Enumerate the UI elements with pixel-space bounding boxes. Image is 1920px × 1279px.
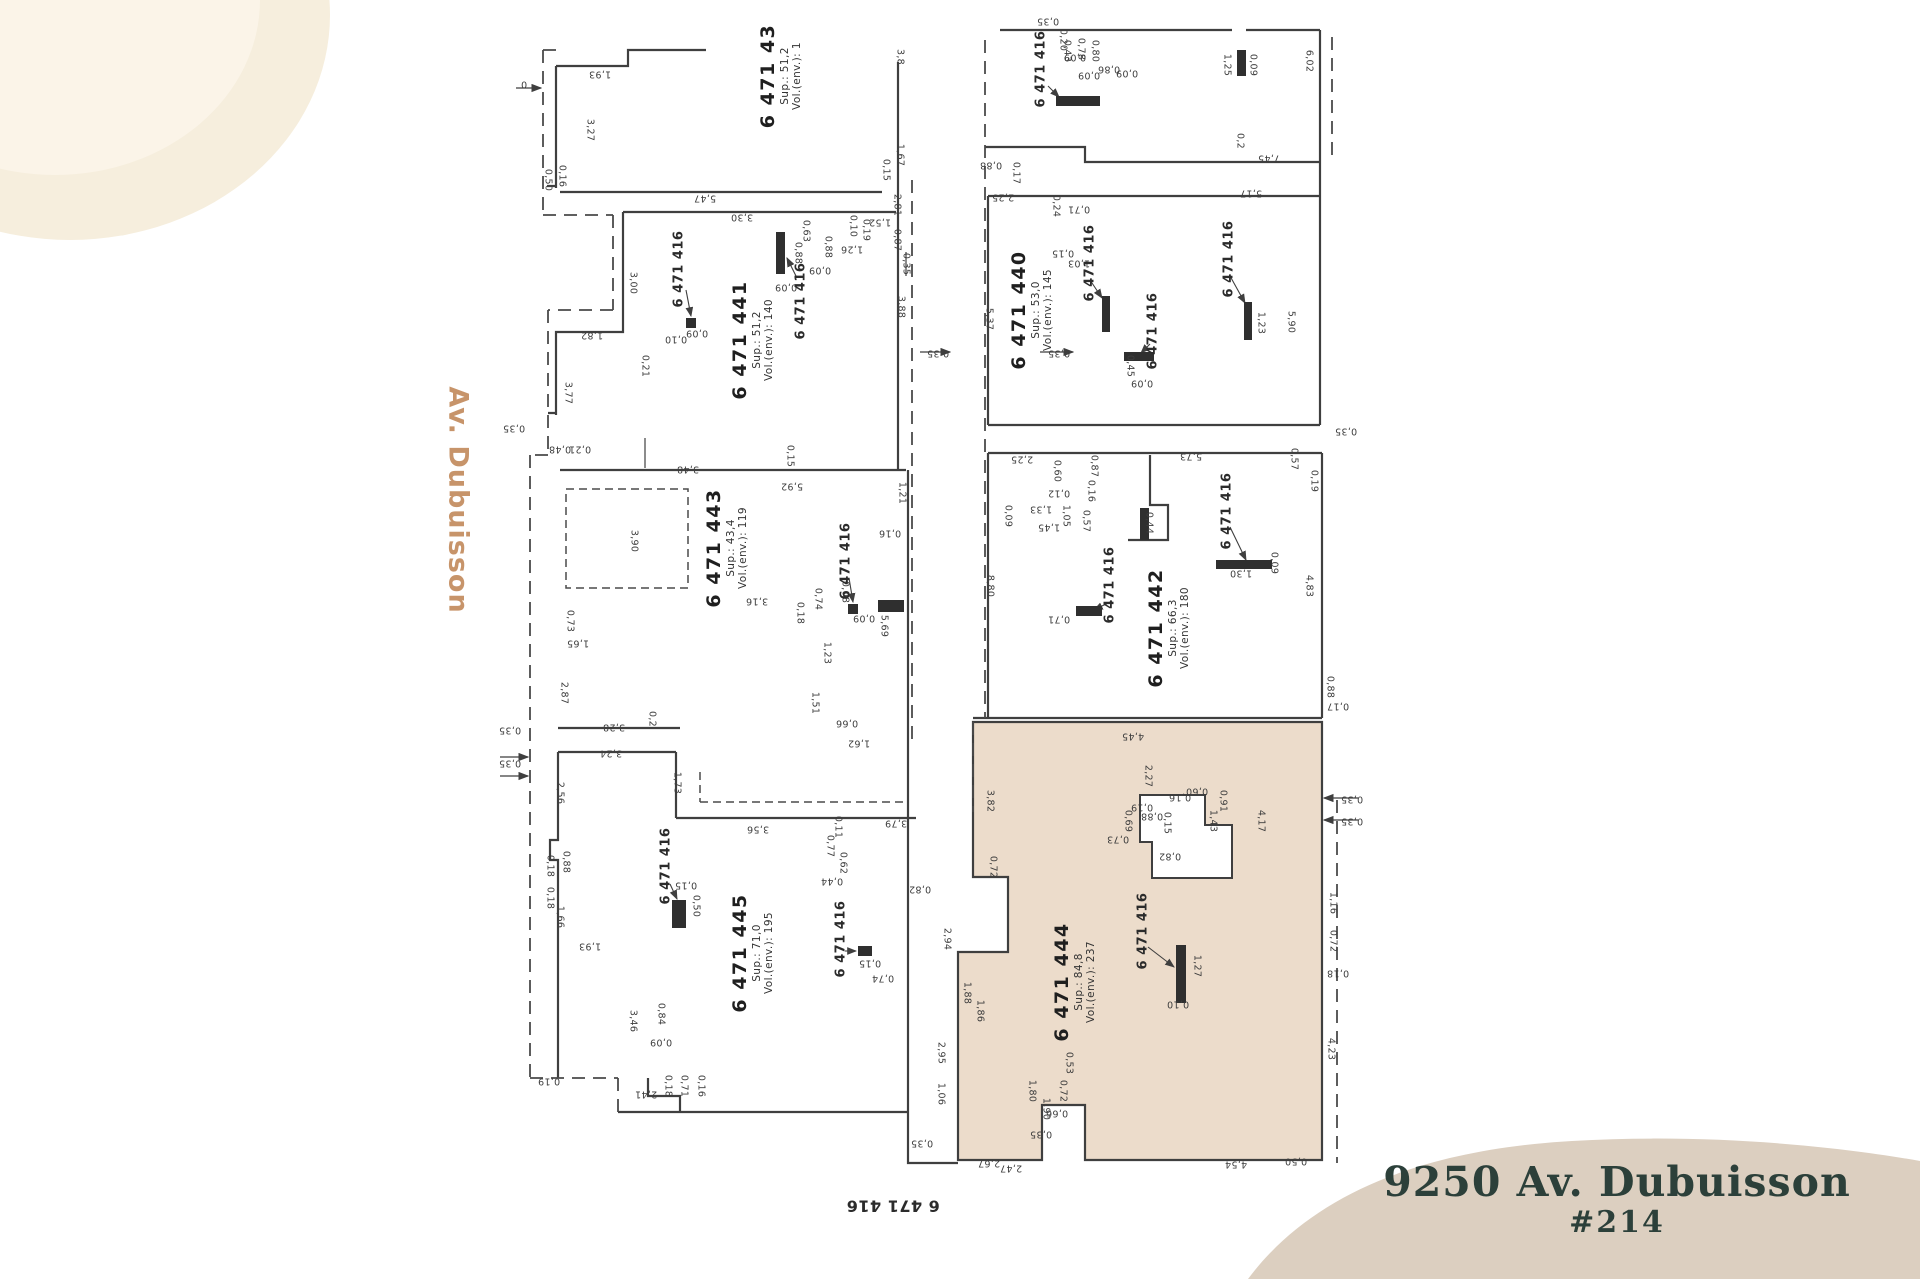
street-label: Av. Dubuisson [443, 386, 474, 613]
floor-plan-canvas [0, 0, 1920, 1279]
unit-number: #214 [1569, 1205, 1665, 1240]
address-block: 9250 Av. Dubuisson #214 [1372, 1160, 1862, 1241]
page: 01,933,270,500,165,470,153,81,672,810,20… [0, 0, 1920, 1279]
highlighted-unit-444 [958, 722, 1322, 1160]
address-title: 9250 Av. Dubuisson [1383, 1158, 1851, 1206]
inner-dashed-lines [566, 489, 906, 802]
